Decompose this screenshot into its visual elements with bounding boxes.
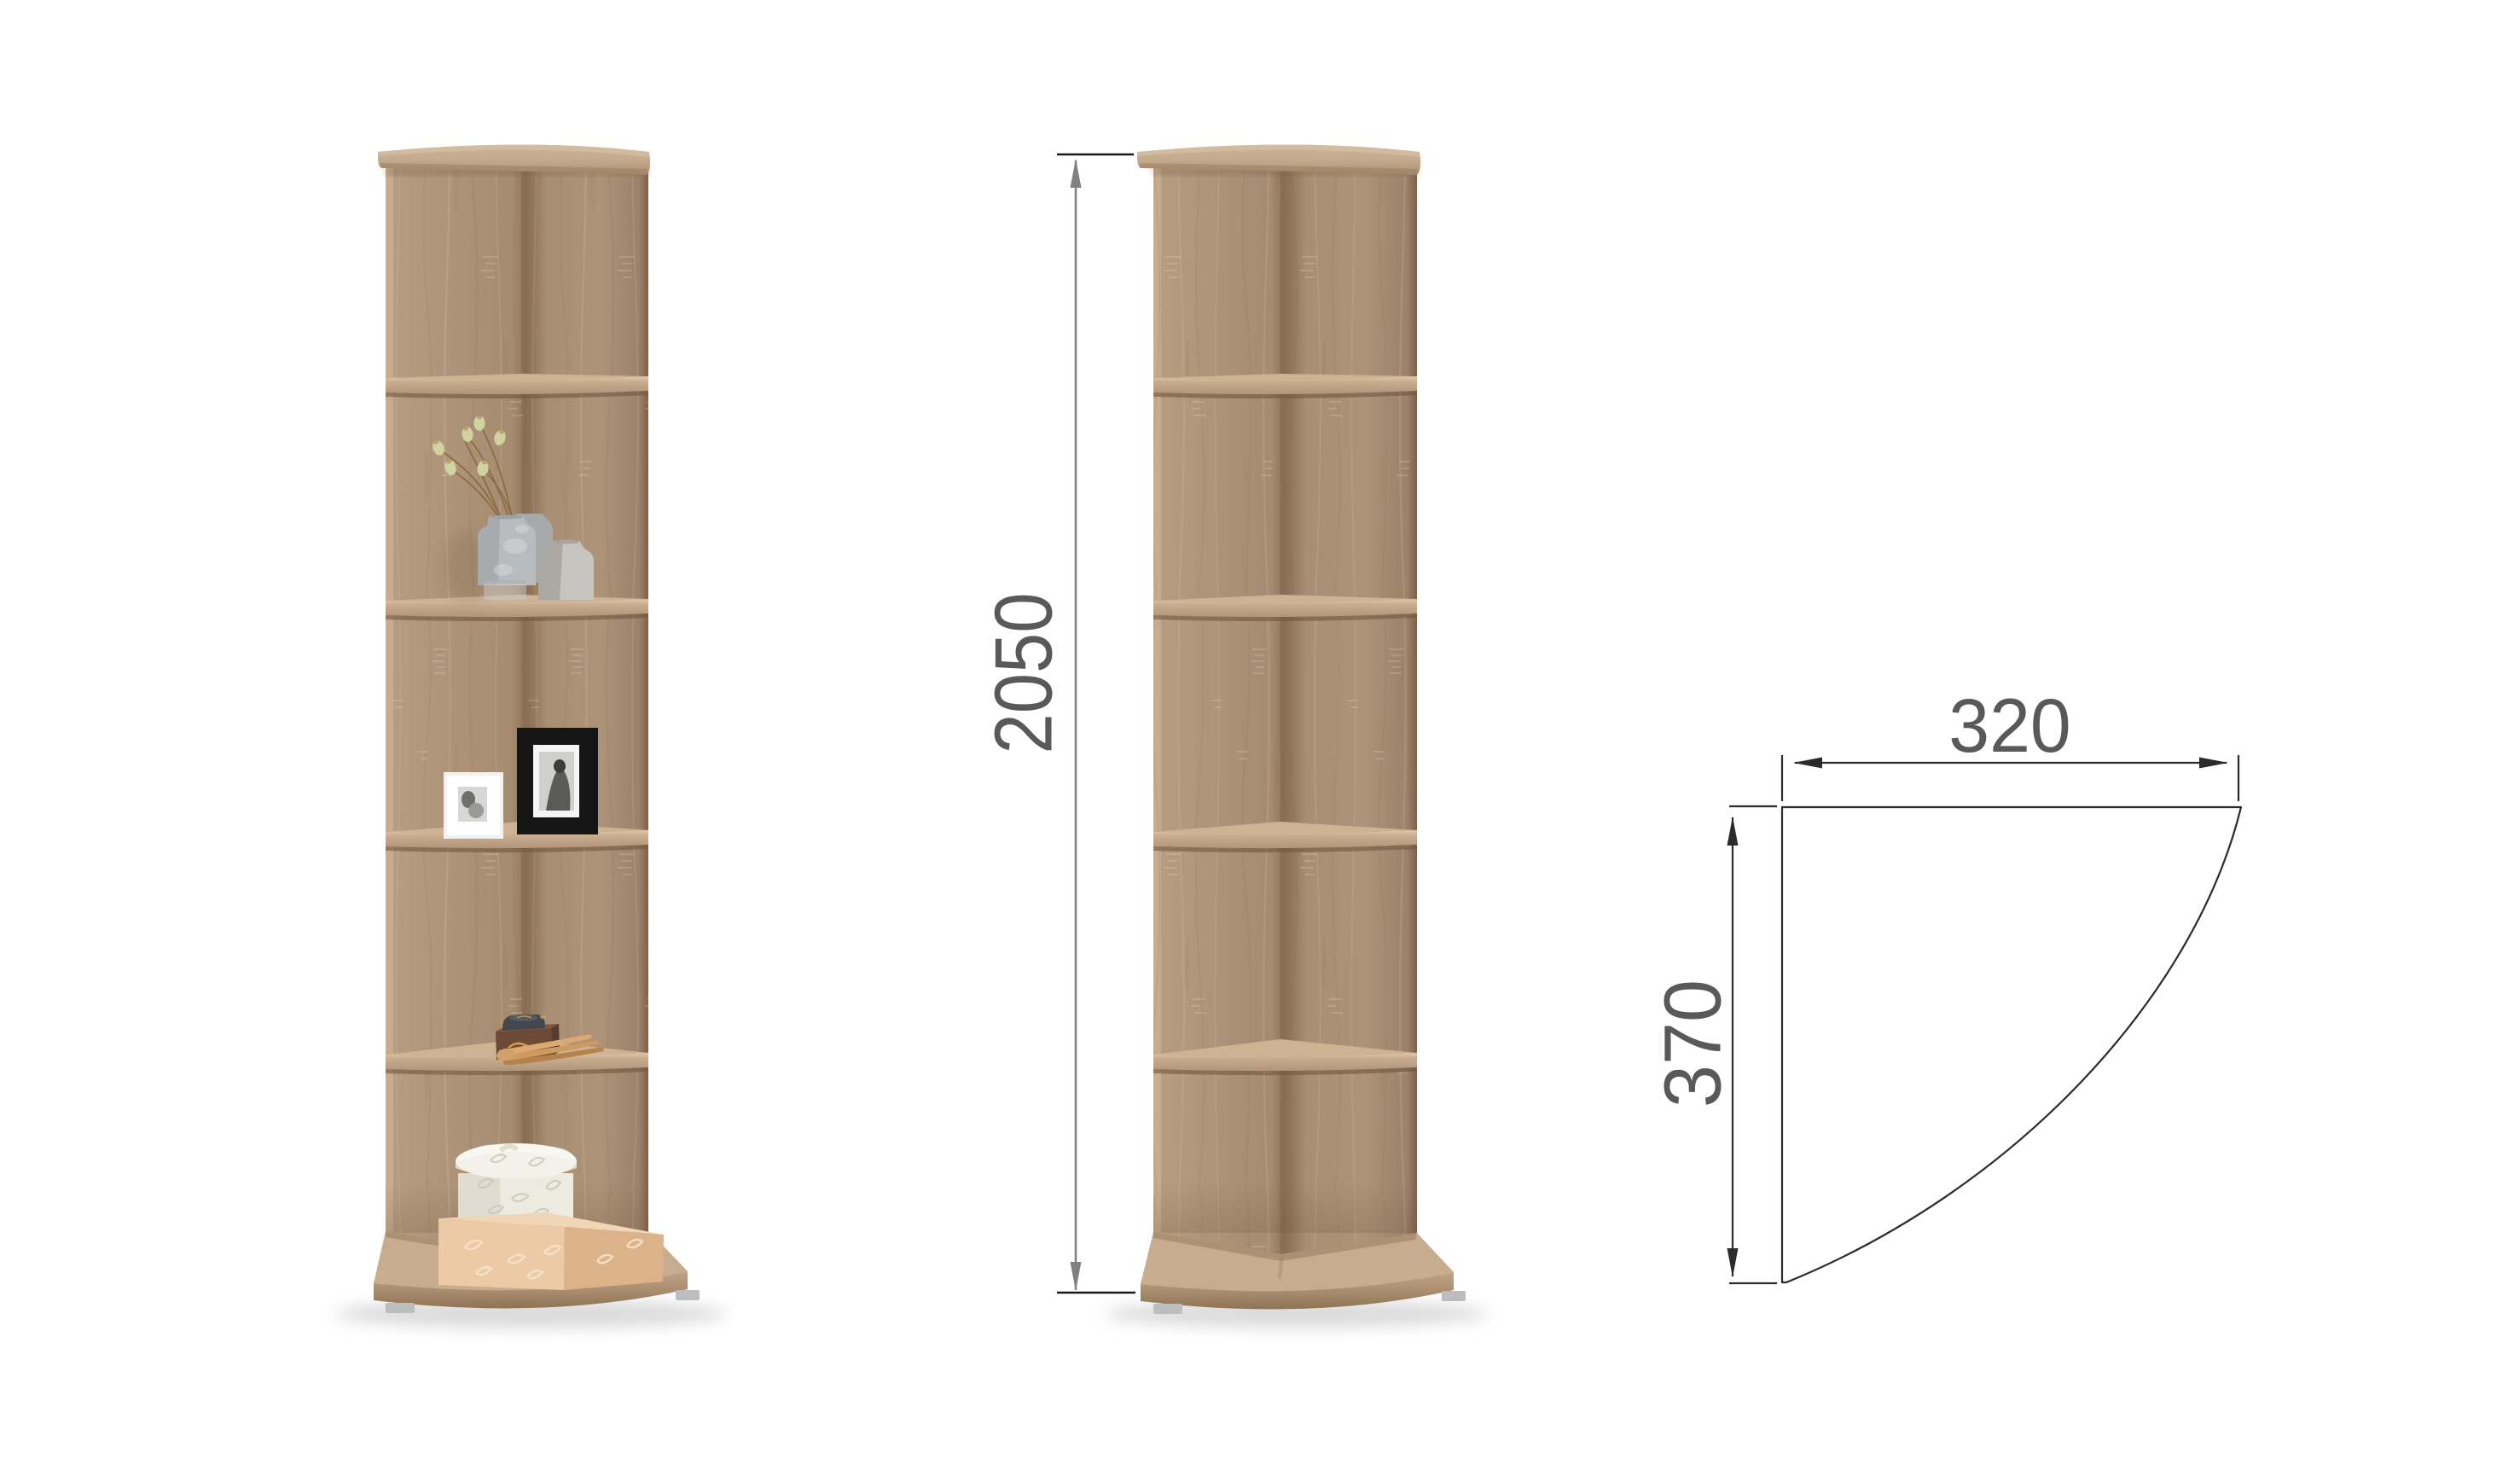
svg-text:370: 370 — [1647, 979, 1739, 1107]
svg-text:2050: 2050 — [978, 592, 1070, 753]
svg-text:320: 320 — [1948, 683, 2070, 768]
